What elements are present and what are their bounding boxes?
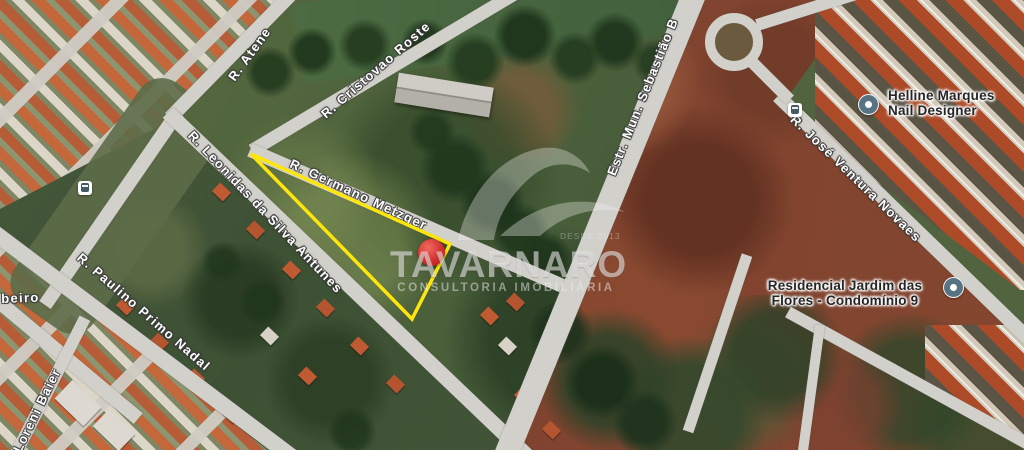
road-condominium-south xyxy=(797,324,825,450)
house-roof xyxy=(316,298,335,317)
street-label-sebastiao: Estr. Mun. Sebastião B xyxy=(604,16,681,178)
tree-canopy-layer xyxy=(0,0,1024,450)
bus-stop-icon[interactable] xyxy=(788,103,802,117)
house-roof xyxy=(480,306,499,325)
house-roof xyxy=(260,326,279,345)
house-roof xyxy=(350,336,369,355)
poi-helline-line2: Nail Designer xyxy=(888,103,995,118)
house-roof xyxy=(246,220,265,239)
scrub-area-southeast xyxy=(540,295,1024,450)
satellite-map-canvas[interactable]: R. Atene R. Cristovao Roste R. Germano M… xyxy=(0,0,1024,450)
house-roof xyxy=(498,336,517,355)
red-dirt-field xyxy=(0,0,1024,450)
property-boundary-triangle xyxy=(0,0,1024,450)
road-estrada-sebastiao xyxy=(489,0,711,450)
house-roof xyxy=(282,260,301,279)
street-label-jose-ventura: R. José Ventura Novaes xyxy=(788,112,925,245)
poi-label-residencial[interactable]: Residencial Jardim das Flores - Condomín… xyxy=(750,278,940,308)
poi-circle-residencial[interactable] xyxy=(943,277,964,298)
poi-circle-helline[interactable] xyxy=(858,94,879,115)
house-roof xyxy=(212,182,231,201)
house-roof xyxy=(542,420,561,439)
bus-stop-icon[interactable] xyxy=(78,181,92,195)
poi-helline-line1: Helline Marques xyxy=(888,88,995,103)
watermark: TAVARNARO CONSULTORIA IMOBILIÁRIA DESDE … xyxy=(0,0,1024,450)
poi-label-helline[interactable]: Helline Marques Nail Designer xyxy=(888,88,995,118)
street-label-germano-metzger: R. Germano Metzger xyxy=(288,156,430,233)
roundabout xyxy=(705,13,763,71)
house-roof xyxy=(386,374,405,393)
road-top-right xyxy=(755,0,886,31)
street-label-beiro-partial: beiro xyxy=(1,290,40,306)
street-label-loreni-baier: Loreni Baier xyxy=(10,366,64,450)
house-roof xyxy=(506,292,525,311)
house-roof xyxy=(298,366,317,385)
condo-rows-northeast xyxy=(815,0,1024,290)
warehouse-building xyxy=(394,73,494,118)
poi-residencial-line2: Flores - Condomínio 9 xyxy=(750,293,940,308)
road-condominium-west xyxy=(683,253,752,433)
location-marker[interactable] xyxy=(418,239,445,266)
poi-residencial-line1: Residencial Jardim das xyxy=(750,278,940,293)
